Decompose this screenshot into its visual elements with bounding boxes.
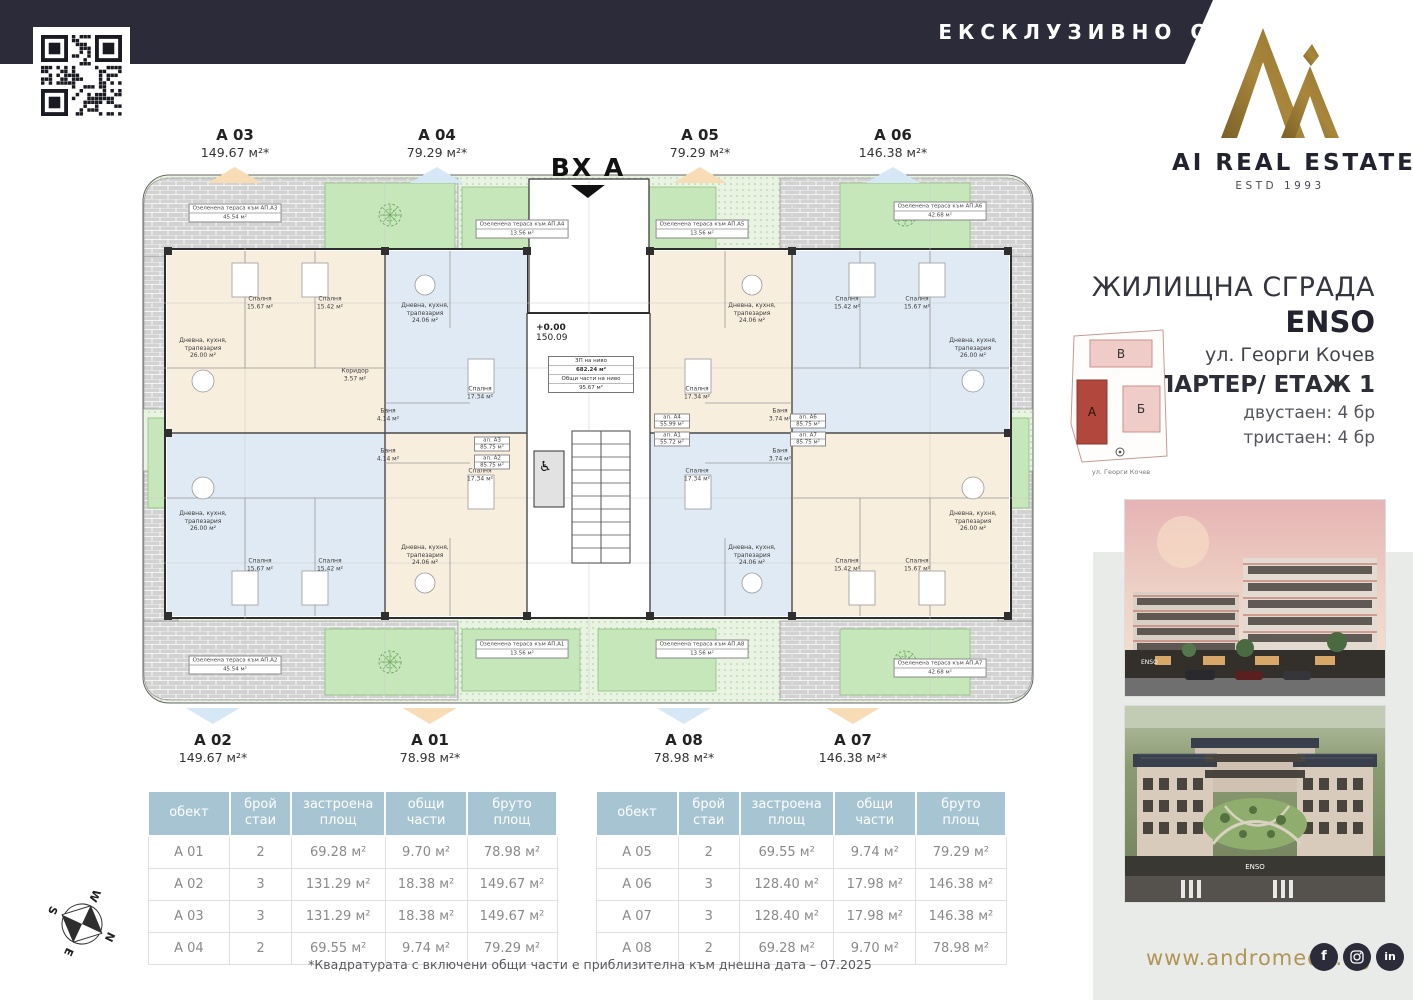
site-block-a-label: А bbox=[1088, 405, 1097, 419]
apartment-tag: ап. А455.99 м² bbox=[654, 414, 690, 429]
unit-marker-name: A 02 bbox=[179, 731, 247, 749]
plan-text-overlay: +0.00 150.09 ЗП на ниво682.24 м²Общи час… bbox=[140, 163, 1037, 715]
floor-title: ПАРТЕР/ ЕТАЖ 1 bbox=[1155, 372, 1375, 398]
room-label: Спалня 15.42 м² bbox=[317, 558, 343, 573]
table-cell: 131.29 м² bbox=[291, 868, 385, 900]
room-label: Дневна, кухня, трапезария 26.00 м² bbox=[949, 510, 996, 533]
table-cell: 146.38 м² bbox=[916, 900, 1006, 932]
unit-marker-area: 79.29 м²* bbox=[670, 145, 730, 160]
table-cell: 149.67 м² bbox=[467, 900, 557, 932]
table-cell: A 07 bbox=[596, 900, 678, 932]
room-label: Баня 3.74 м² bbox=[769, 408, 791, 423]
table-cell: 131.29 м² bbox=[291, 900, 385, 932]
elevation-marker: +0.00 150.09 bbox=[536, 323, 568, 344]
table-header-cell: обект bbox=[148, 791, 230, 836]
table-cell: 9.74 м² bbox=[834, 836, 916, 869]
table-cell: 2 bbox=[678, 836, 740, 869]
table-cell: 9.70 м² bbox=[385, 836, 467, 869]
compass-e: E bbox=[61, 946, 76, 958]
level-info-line: 682.24 м² bbox=[549, 366, 633, 375]
floor-info: ПАРТЕР/ ЕТАЖ 1 двустаен: 4 бр тристаен: … bbox=[1155, 372, 1375, 448]
table-cell: 17.98 м² bbox=[834, 868, 916, 900]
table-header-cell: брой стаи bbox=[678, 791, 740, 836]
unit-marker-area: 78.98 м²* bbox=[654, 750, 714, 765]
table-cell: 128.40 м² bbox=[740, 868, 834, 900]
room-label: Спалня 15.67 м² bbox=[904, 558, 930, 573]
unit-marker-area: 146.38 м²* bbox=[819, 750, 887, 765]
apartment-tag: ап. А285.75 м² bbox=[474, 455, 510, 470]
entrance-callout: ВХ А bbox=[551, 153, 625, 198]
terrace-label: Озеленена тераса към АП.А642.68 м² bbox=[894, 202, 987, 221]
mountain-logo-icon bbox=[1215, 26, 1345, 138]
site-map-drawing: В А Б ул. Георги Кочев bbox=[1066, 324, 1176, 480]
photo1-cars bbox=[1185, 670, 1311, 680]
table-header-row: обектброй стаизастроена площобщи частибр… bbox=[596, 791, 1006, 836]
table-header-cell: общи части bbox=[385, 791, 467, 836]
apartment-tag: ап. А155.72 м² bbox=[654, 432, 690, 447]
room-label: Спалня 17.34 м² bbox=[467, 468, 493, 483]
entrance-label: ВХ А bbox=[551, 153, 625, 182]
table-row: A 05269.55 м²9.74 м²79.29 м² bbox=[596, 836, 1006, 869]
apartment-tag: ап. А385.75 м² bbox=[474, 437, 510, 452]
site-street-label: ул. Георги Кочев bbox=[1092, 468, 1150, 476]
unit-marker-a05: A 0579.29 м²* bbox=[670, 126, 730, 183]
table-row: A 023131.29 м²18.38 м²149.67 м² bbox=[148, 868, 557, 900]
room-label: Баня 3.74 м² bbox=[769, 448, 791, 463]
unit-marker-arrow-icon bbox=[186, 708, 240, 724]
unit-marker-a01: A 0178.98 м²* bbox=[400, 708, 460, 765]
compass-rose: N E S W bbox=[44, 886, 120, 962]
compass-s: S bbox=[45, 904, 60, 917]
table-header-cell: застроена площ bbox=[740, 791, 834, 836]
table-row: A 01269.28 м²9.70 м²78.98 м² bbox=[148, 836, 557, 869]
unit-marker-area: 149.67 м²* bbox=[201, 145, 269, 160]
table-cell: 149.67 м² bbox=[467, 868, 557, 900]
table-row: A 073128.40 м²17.98 м²146.38 м² bbox=[596, 900, 1006, 932]
terrace-label: Озеленена тераса към АП.А413.56 м² bbox=[476, 220, 569, 239]
apartment-tag: ап. А785.75 м² bbox=[790, 432, 826, 447]
units-table-a05-a08: обектброй стаизастроена площобщи частибр… bbox=[595, 790, 1007, 965]
table-header-cell: брой стаи bbox=[230, 791, 291, 836]
photo2-enso-sign: ENSO bbox=[1245, 863, 1265, 871]
level-info-line: 95.67 м² bbox=[549, 384, 633, 392]
unit-marker-arrow-icon bbox=[208, 167, 262, 183]
room-label: Дневна, кухня, трапезария 26.00 м² bbox=[949, 337, 996, 360]
room-label: Спалня 15.67 м² bbox=[247, 296, 273, 311]
unit-marker-a04: A 0479.29 м²* bbox=[407, 126, 467, 183]
unit-marker-arrow-icon bbox=[673, 167, 727, 183]
table-cell: 69.28 м² bbox=[291, 836, 385, 869]
unit-marker-name: A 03 bbox=[201, 126, 269, 144]
building-type: ЖИЛИЩНА СГРАДА bbox=[1092, 272, 1375, 303]
table-cell: 18.38 м² bbox=[385, 900, 467, 932]
footer: www.andromeda.bg f in bbox=[1100, 938, 1400, 978]
footnote: *Квадратурата с включени общи части е пр… bbox=[140, 957, 1040, 972]
site-block-v-label: В bbox=[1117, 347, 1125, 361]
unit-marker-area: 149.67 м²* bbox=[179, 750, 247, 765]
photo1-enso-sign: ENSO bbox=[1141, 659, 1158, 666]
table-header-cell: застроена площ bbox=[291, 791, 385, 836]
facebook-icon[interactable]: f bbox=[1310, 943, 1338, 971]
table-cell: 69.55 м² bbox=[740, 836, 834, 869]
table-cell: 78.98 м² bbox=[467, 836, 557, 869]
table-header-cell: общи части bbox=[834, 791, 916, 836]
table-cell: A 05 bbox=[596, 836, 678, 869]
building-photo-1: ENSO bbox=[1125, 500, 1385, 696]
unit-marker-a07: A 07146.38 м²* bbox=[819, 708, 887, 765]
unit-marker-arrow-icon bbox=[657, 708, 711, 724]
terrace-label: Озеленена тераса към АП.А813.56 м² bbox=[656, 640, 749, 659]
table-header-row: обектброй стаизастроена площобщи частибр… bbox=[148, 791, 557, 836]
unit-marker-name: A 04 bbox=[407, 126, 467, 144]
room-label: Спалня 17.34 м² bbox=[684, 386, 710, 401]
table-cell: 18.38 м² bbox=[385, 868, 467, 900]
room-label: Дневна, кухня, трапезария 26.00 м² bbox=[179, 510, 226, 533]
table-header-cell: бруто площ bbox=[467, 791, 557, 836]
unit-marker-arrow-icon bbox=[410, 167, 464, 183]
unit-marker-a08: A 0878.98 м²* bbox=[654, 708, 714, 765]
table-cell: 2 bbox=[230, 836, 291, 869]
room-label: Баня 4.14 м² bbox=[377, 448, 399, 463]
floor-plan: +0.00 150.09 ЗП на ниво682.24 м²Общи час… bbox=[140, 163, 1037, 715]
unit-marker-arrow-icon bbox=[826, 708, 880, 724]
table-cell: 17.98 м² bbox=[834, 900, 916, 932]
brand-name: AI REAL ESTATE bbox=[1172, 150, 1388, 176]
table-cell: 3 bbox=[230, 900, 291, 932]
qr-code-image bbox=[33, 27, 130, 124]
level-info-box: ЗП на ниво682.24 м²Общи части на ниво95.… bbox=[548, 356, 634, 393]
terrace-label: Озеленена тераса към АП.А113.56 м² bbox=[476, 640, 569, 659]
apartment-tag: ап. А685.75 м² bbox=[790, 414, 826, 429]
table-cell: A 03 bbox=[148, 900, 230, 932]
unit-marker-name: A 05 bbox=[670, 126, 730, 144]
room-label: Дневна, кухня, трапезария 26.00 м² bbox=[179, 337, 226, 360]
table-cell: A 01 bbox=[148, 836, 230, 869]
room-label: Коридор 3.57 м² bbox=[341, 368, 368, 383]
unit-marker-arrow-icon bbox=[866, 167, 920, 183]
room-label: Спалня 15.42 м² bbox=[317, 296, 343, 311]
unit-marker-area: 146.38 м²* bbox=[859, 145, 927, 160]
level-info-line: Общи части на ниво bbox=[549, 375, 633, 384]
room-label: Спалня 15.42 м² bbox=[834, 558, 860, 573]
unit-marker-area: 79.29 м²* bbox=[407, 145, 467, 160]
terrace-label: Озеленена тераса към АП.А513.56 м² bbox=[656, 220, 749, 239]
instagram-icon[interactable] bbox=[1343, 943, 1371, 971]
table-row: A 033131.29 м²18.38 м²149.67 м² bbox=[148, 900, 557, 932]
unit-marker-arrow-icon bbox=[403, 708, 457, 724]
level-info-line: ЗП на ниво bbox=[549, 357, 633, 366]
unit-marker-a03: A 03149.67 м²* bbox=[201, 126, 269, 183]
building-photo-2: ENSO bbox=[1125, 706, 1385, 902]
terrace-label: Озеленена тераса към АП.А245.54 м² bbox=[189, 656, 282, 675]
table-cell: 3 bbox=[678, 900, 740, 932]
site-map: В А Б ул. Георги Кочев bbox=[1066, 324, 1176, 480]
unit-mix-1: двустаен: 4 бр bbox=[1155, 403, 1375, 423]
table-cell: 146.38 м² bbox=[916, 868, 1006, 900]
units-table-a01-a04: обектброй стаизастроена площобщи частибр… bbox=[147, 790, 558, 965]
table-cell: 3 bbox=[230, 868, 291, 900]
table-cell: 128.40 м² bbox=[740, 900, 834, 932]
unit-mix-2: тристаен: 4 бр bbox=[1155, 428, 1375, 448]
terrace-label: Озеленена тераса към АП.А345.54 м² bbox=[189, 204, 282, 223]
flyer-page: ЕКСКЛУЗИВНО ОТ AI REAL ESTATE ESTD 1993 … bbox=[0, 0, 1413, 1000]
linkedin-icon[interactable]: in bbox=[1376, 943, 1404, 971]
unit-marker-area: 78.98 м²* bbox=[400, 750, 460, 765]
room-label: Баня 4.14 м² bbox=[377, 408, 399, 423]
table-header-cell: обект bbox=[596, 791, 678, 836]
entrance-arrow-icon bbox=[571, 185, 605, 198]
room-label: Дневна, кухня, трапезария 24.06 м² bbox=[728, 302, 775, 325]
unit-marker-name: A 06 bbox=[859, 126, 927, 144]
qr-code bbox=[33, 27, 130, 124]
brand-estd: ESTD 1993 bbox=[1172, 180, 1388, 192]
room-label: Спалня 17.34 м² bbox=[684, 468, 710, 483]
table-cell: A 02 bbox=[148, 868, 230, 900]
room-label: Спалня 15.67 м² bbox=[904, 296, 930, 311]
unit-marker-name: A 07 bbox=[819, 731, 887, 749]
table-row: A 063128.40 м²17.98 м²146.38 м² bbox=[596, 868, 1006, 900]
terrace-label: Озеленена тераса към АП.А742.68 м² bbox=[894, 659, 987, 678]
unit-marker-name: A 08 bbox=[654, 731, 714, 749]
unit-marker-a02: A 02149.67 м²* bbox=[179, 708, 247, 765]
table-cell: 79.29 м² bbox=[916, 836, 1006, 869]
table-header-cell: бруто площ bbox=[916, 791, 1006, 836]
compass-n: N bbox=[102, 930, 118, 944]
table-cell: A 06 bbox=[596, 868, 678, 900]
room-label: Спалня 15.67 м² bbox=[247, 558, 273, 573]
room-label: Спалня 15.42 м² bbox=[834, 296, 860, 311]
photo2-courtyard bbox=[1203, 798, 1307, 850]
unit-marker-name: A 01 bbox=[400, 731, 460, 749]
room-label: Спалня 17.34 м² bbox=[467, 386, 493, 401]
wheelchair-icon: ♿ bbox=[539, 459, 552, 475]
table-cell: 3 bbox=[678, 868, 740, 900]
site-block-b-label: Б bbox=[1137, 402, 1145, 416]
compass-w: W bbox=[86, 887, 103, 903]
room-label: Дневна, кухня, трапезария 24.06 м² bbox=[401, 544, 448, 567]
room-label: Дневна, кухня, трапезария 24.06 м² bbox=[728, 544, 775, 567]
brand-logo: AI REAL ESTATE ESTD 1993 bbox=[1172, 26, 1388, 192]
unit-marker-a06: A 06146.38 м²* bbox=[859, 126, 927, 183]
room-label: Дневна, кухня, трапезария 24.06 м² bbox=[401, 302, 448, 325]
